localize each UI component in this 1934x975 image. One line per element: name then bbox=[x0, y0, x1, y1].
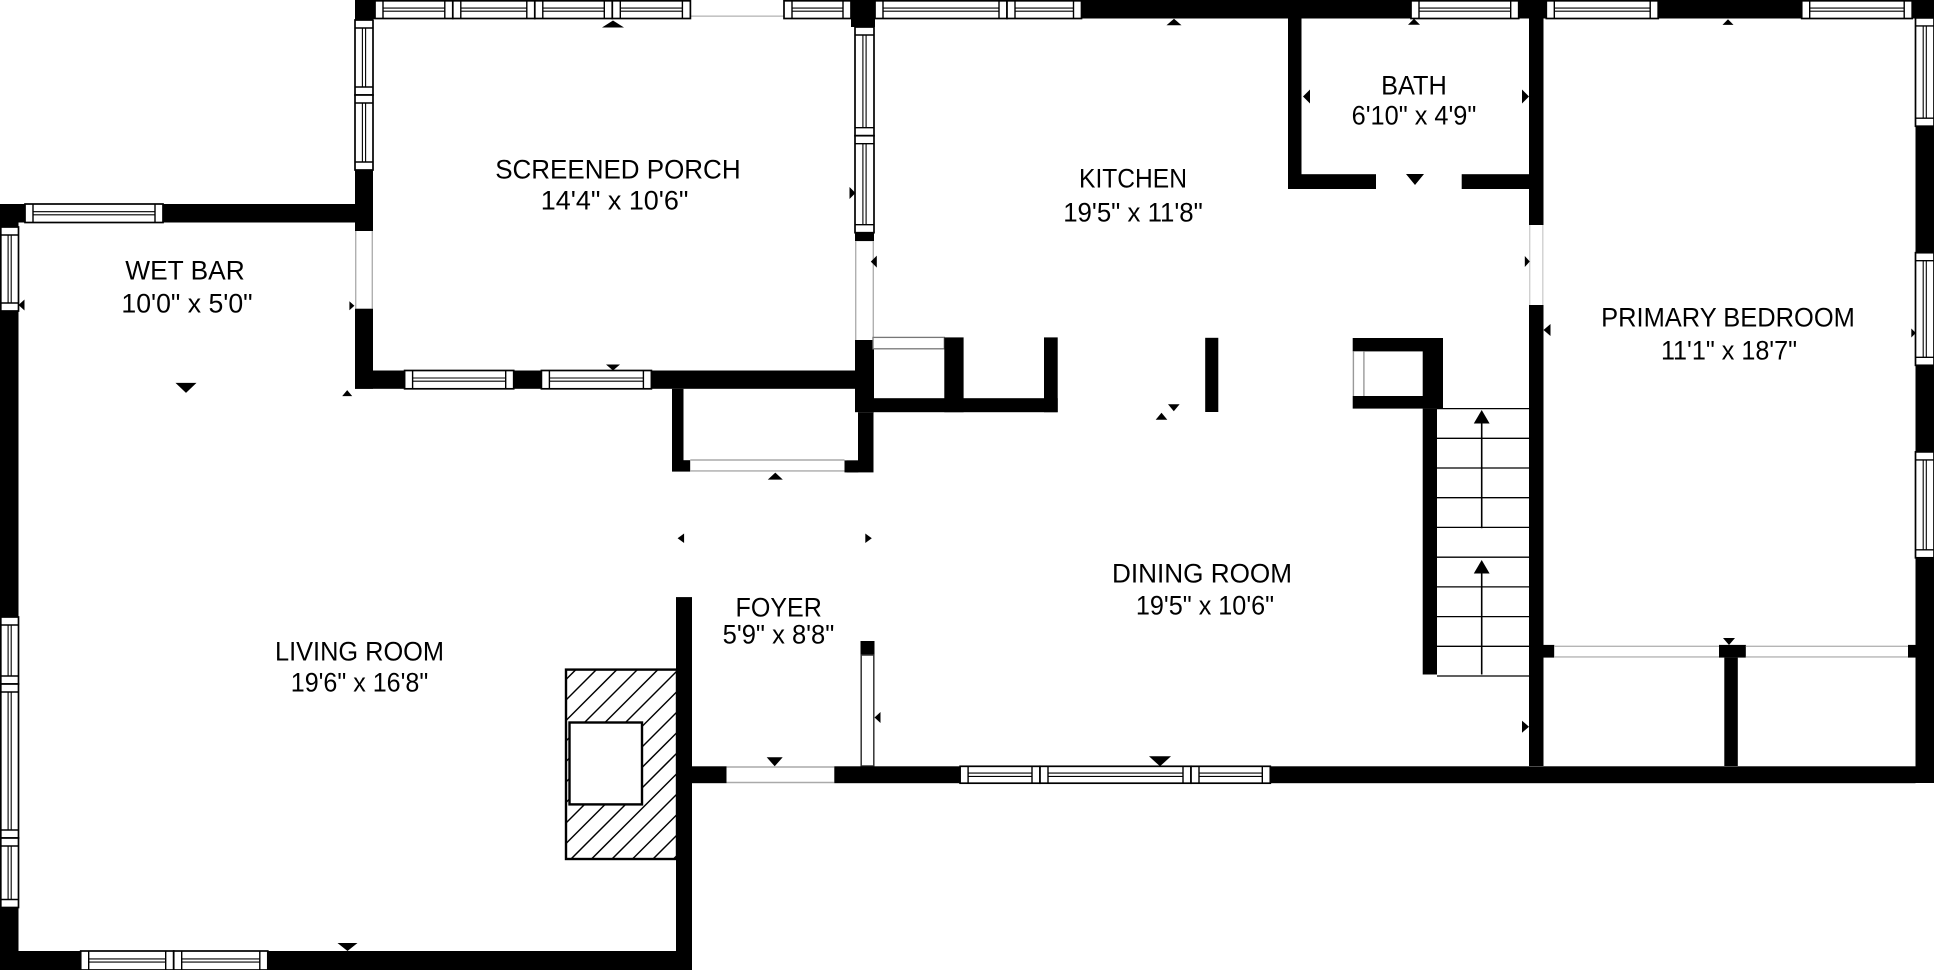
svg-text:SCREENED PORCH: SCREENED PORCH bbox=[495, 155, 740, 185]
svg-text:19'5" x 11'8": 19'5" x 11'8" bbox=[1063, 198, 1203, 228]
svg-text:FOYER: FOYER bbox=[736, 593, 822, 623]
svg-text:KITCHEN: KITCHEN bbox=[1079, 164, 1187, 194]
svg-text:11'1" x 18'7": 11'1" x 18'7" bbox=[1661, 336, 1797, 366]
svg-text:6'10" x 4'9": 6'10" x 4'9" bbox=[1352, 101, 1477, 131]
svg-text:BATH: BATH bbox=[1381, 71, 1447, 101]
svg-text:5'9" x 8'8": 5'9" x 8'8" bbox=[723, 620, 835, 650]
svg-text:WET BAR: WET BAR bbox=[125, 256, 244, 286]
svg-text:19'6" x 16'8": 19'6" x 16'8" bbox=[291, 668, 429, 698]
svg-text:LIVING ROOM: LIVING ROOM bbox=[275, 637, 444, 667]
svg-text:10'0" x 5'0": 10'0" x 5'0" bbox=[121, 289, 252, 319]
svg-text:DINING ROOM: DINING ROOM bbox=[1112, 559, 1292, 589]
svg-text:PRIMARY BEDROOM: PRIMARY BEDROOM bbox=[1601, 303, 1855, 333]
svg-text:19'5" x 10'6": 19'5" x 10'6" bbox=[1136, 591, 1274, 621]
svg-text:14'4" x 10'6": 14'4" x 10'6" bbox=[541, 186, 689, 216]
